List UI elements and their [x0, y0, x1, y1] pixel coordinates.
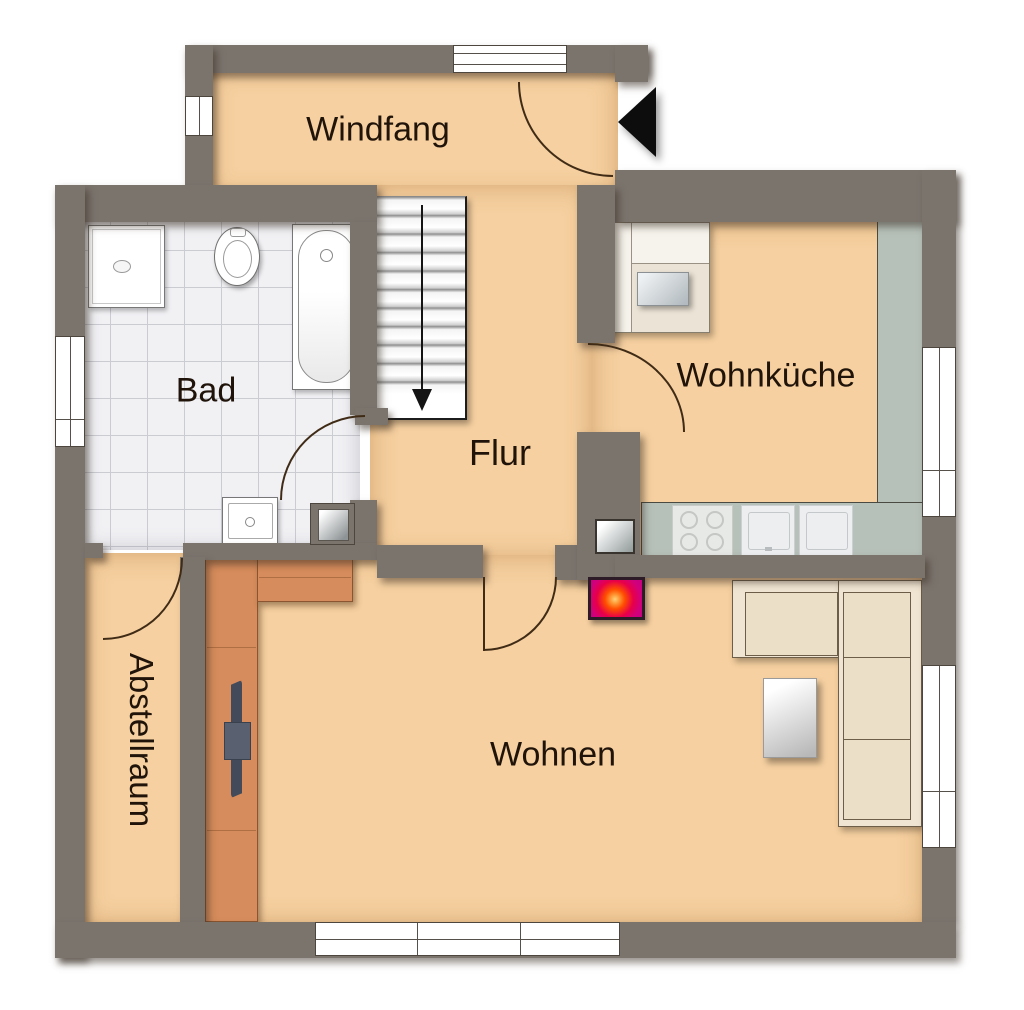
- cooktop: [672, 505, 733, 556]
- washbasin-drain-icon: [245, 517, 255, 527]
- coffee-table: [763, 678, 817, 758]
- arrow-down-icon: [412, 389, 432, 411]
- staircase: [377, 196, 467, 420]
- wall-abstell-door-stub: [85, 543, 103, 558]
- window-frame-line: [939, 666, 940, 847]
- kitchen-counter-right: [877, 222, 922, 502]
- toilet-bowl: [223, 240, 252, 278]
- room-label-wohnkueche: Wohnküche: [677, 357, 856, 396]
- plumbing-niche-kitchen: [595, 519, 635, 554]
- floor-plan: Windfang Bad Flur Wohnküche Wohnen Abste…: [0, 0, 1024, 1010]
- window-frame-line: [923, 470, 955, 471]
- window-frame-line: [939, 348, 940, 516]
- wall-entrance-stub-upper: [615, 45, 648, 82]
- wall-abstell-wohnen: [180, 557, 205, 922]
- appliance-unit: [799, 505, 853, 556]
- partition-joint-line: [207, 830, 256, 831]
- burner-icon: [706, 533, 724, 551]
- partition-joint-line: [259, 577, 351, 578]
- wall-kitchen-bottom: [615, 555, 925, 578]
- wall-bad-bottom: [183, 543, 377, 560]
- stair-direction-line: [421, 205, 423, 393]
- tv-mount: [224, 722, 251, 760]
- cushion-divider: [844, 657, 910, 658]
- shower-drain-icon: [113, 260, 131, 273]
- entrance-arrow-icon: [618, 87, 656, 157]
- plumbing-niche-bad: [310, 503, 355, 545]
- appliance-face: [806, 512, 848, 550]
- toilet-lid-line: [230, 228, 246, 237]
- sofa-cushion-column: [843, 592, 911, 820]
- window-wohnen-right: [922, 665, 956, 848]
- sink-basin: [748, 512, 790, 550]
- window-frame-line: [520, 923, 521, 955]
- bathtub-drain-icon: [320, 249, 333, 262]
- burner-icon: [680, 511, 698, 529]
- window-frame-line: [417, 923, 418, 955]
- room-label-bad: Bad: [176, 372, 237, 411]
- window-frame-line: [923, 791, 955, 792]
- window-frame-line: [454, 53, 566, 54]
- room-label-wohnen: Wohnen: [490, 736, 616, 775]
- window-bad-left: [55, 336, 85, 447]
- window-windfang-left: [185, 96, 213, 136]
- window-frame-line: [56, 419, 84, 420]
- sofa-cushion: [745, 592, 838, 656]
- wall-flur-wohnen: [377, 545, 483, 578]
- wall-bad-right: [350, 222, 377, 415]
- wall-wohnkueche-top: [615, 170, 956, 222]
- window-frame-line: [454, 64, 566, 65]
- burner-icon: [706, 511, 724, 529]
- partition-joint-line: [207, 647, 256, 648]
- shower: [88, 225, 165, 308]
- window-windfang-top: [453, 45, 567, 73]
- toilet: [214, 227, 260, 286]
- wall-exterior-left: [55, 185, 85, 958]
- window-frame-line: [70, 337, 71, 446]
- room-label-abstellraum: Abstellraum: [122, 653, 160, 827]
- room-label-windfang: Windfang: [306, 111, 450, 150]
- window-frame-line: [199, 97, 200, 135]
- sink-tap-icon: [765, 547, 772, 551]
- sink-unit: [741, 505, 795, 556]
- cushion-divider: [844, 739, 910, 740]
- tv-partition-wall-horizontal: [257, 555, 353, 602]
- wall-wohnkueche-left-upper: [577, 185, 615, 343]
- wall-bad-top: [55, 185, 377, 222]
- washbasin: [222, 497, 278, 545]
- window-frame-line: [316, 939, 619, 940]
- room-label-flur: Flur: [469, 432, 531, 474]
- window-wohnen-bottom: [315, 922, 620, 956]
- burner-icon: [680, 533, 698, 551]
- fireplace-stove: [588, 577, 645, 620]
- window-wohnkueche-right: [922, 347, 956, 517]
- niche-panel: [318, 509, 349, 541]
- wall-windfang-top: [185, 45, 648, 73]
- dining-table: [637, 272, 689, 306]
